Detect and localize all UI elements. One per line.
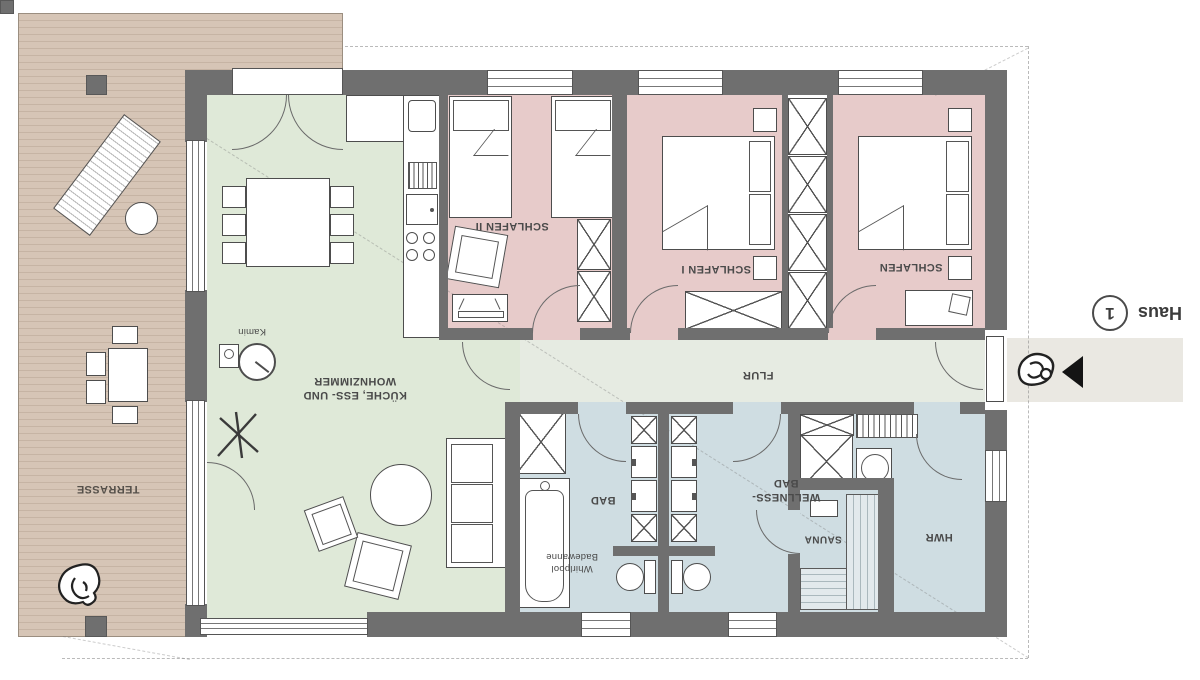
exterior-wall-left [185, 70, 207, 142]
built-in-closet [788, 214, 827, 271]
entrance-door-leaf [986, 336, 1004, 402]
dining-chair [330, 242, 354, 264]
bath-cabinet [671, 514, 697, 542]
fireplace-label: Kamin [238, 325, 266, 337]
built-in-closet [788, 156, 827, 213]
boundary-bottom [62, 658, 1028, 659]
cooktop [404, 230, 440, 264]
dining-chair [222, 242, 246, 264]
whirlpool-tub [518, 478, 570, 608]
bath-label: BAD [590, 492, 615, 506]
coffee-table [370, 464, 432, 526]
terrace-chair [86, 352, 106, 376]
terrace-deck-top-strip [190, 13, 343, 73]
hwr-label: HWR [925, 529, 952, 543]
window-wellness-south [728, 612, 777, 637]
window-living-south [200, 618, 368, 635]
shower [516, 410, 566, 474]
pergola-post [85, 616, 107, 637]
bath-cabinet [631, 416, 657, 444]
built-in-closet [788, 98, 827, 155]
nightstand [948, 108, 972, 132]
washbasin [631, 446, 657, 478]
sauna-bench [800, 568, 847, 610]
bedroom-label: SCHLAFEN [879, 259, 942, 273]
dresser [452, 294, 508, 322]
washbasin [631, 480, 657, 512]
dining-chair [330, 214, 354, 236]
terrace-label: TERRASSE [76, 481, 139, 495]
window-bedroom2 [487, 70, 573, 95]
person-icon [1008, 344, 1062, 398]
built-in-closet [788, 272, 827, 329]
wall-bedrooms-hallway [439, 328, 985, 340]
wardrobe [577, 271, 611, 322]
wall-kitchen-bedroom2 [439, 93, 448, 338]
wardrobe [685, 291, 782, 330]
window-living-left [186, 400, 205, 606]
bath-cabinet [671, 416, 697, 444]
house-number: 1 [1092, 295, 1128, 331]
play-rug [446, 226, 509, 289]
door-opening-bath [578, 402, 626, 414]
door-opening-wellness [733, 402, 781, 414]
coat-rack-shelf [856, 414, 918, 438]
window-bedroom1 [638, 70, 723, 95]
wardrobe [577, 219, 611, 270]
kitchen-sink [408, 100, 436, 132]
window-hwr [985, 450, 1007, 502]
double-bed [662, 136, 775, 250]
sauna-bench [846, 494, 880, 610]
door-opening-hwr [914, 402, 960, 414]
living-room-label: KÜCHE, ESS- UND WOHNZIMMER [303, 373, 407, 401]
house-badge: Haus 1 [1068, 292, 1182, 334]
dining-table [246, 178, 330, 267]
nightstand [753, 256, 777, 280]
wall-bedroom2-bedroom1 [612, 95, 627, 338]
wellness-bath-label: WELLNESS- BAD [752, 475, 820, 503]
dining-chair [330, 186, 354, 208]
whirlpool-label: Whirlpool Badewanne [546, 550, 598, 574]
dog-icon [55, 560, 105, 614]
window-living-left [186, 140, 205, 292]
terrace-deck [18, 13, 191, 637]
nightstand [753, 108, 777, 132]
kitchen-fridge [406, 194, 438, 225]
fireplace-stove [238, 343, 276, 381]
exterior-wall-left [185, 290, 207, 402]
entrance-arrow-icon [1062, 356, 1083, 388]
wall-living-bath [505, 402, 520, 612]
dining-chair [222, 214, 246, 236]
window-bedroom [838, 70, 923, 95]
hall-closet [800, 414, 854, 436]
single-bed [449, 96, 512, 218]
exterior-wall-bottom [367, 612, 1007, 637]
french-door-recess [232, 68, 343, 95]
sofa [446, 438, 506, 568]
dining-chair [222, 186, 246, 208]
bedroom1-label: SCHLAFEN I [681, 261, 751, 275]
bedroom2-label: SCHLAFEN II [475, 218, 548, 232]
dish-rack [408, 162, 437, 189]
washbasin [671, 480, 697, 512]
window-bath-south [581, 612, 631, 637]
terrace-side-table [125, 202, 158, 235]
single-bed [551, 96, 614, 218]
wall-wc-stub [613, 546, 658, 556]
wall-sauna-hwr [878, 478, 894, 612]
roof-hip-line-bottomleft [63, 636, 190, 660]
wall-closet-left [782, 95, 788, 338]
wall-closet-right [827, 95, 833, 338]
bath-cabinet [631, 514, 657, 542]
terrace-chair [86, 380, 106, 404]
boundary-top [345, 46, 1028, 47]
wall-bath-partition [658, 414, 669, 612]
terrace-table [108, 348, 148, 402]
wall-wc-stub [669, 546, 715, 556]
washbasin [671, 446, 697, 478]
nightstand [948, 256, 972, 280]
sauna-label: SAUNA [804, 532, 842, 545]
terrace-chair [112, 326, 138, 344]
pergola-post [0, 0, 14, 14]
fireplace-wood-box [219, 344, 239, 368]
terrace-chair [112, 406, 138, 424]
pergola-post [86, 75, 107, 95]
house-badge-text: Haus [1138, 303, 1182, 324]
double-bed [858, 136, 972, 250]
floorplan-canvas: TERRASSE [0, 0, 1200, 680]
floor-lamp-icon [212, 404, 264, 462]
bed-bench [905, 290, 973, 326]
hallway-label: FLUR [743, 367, 774, 381]
